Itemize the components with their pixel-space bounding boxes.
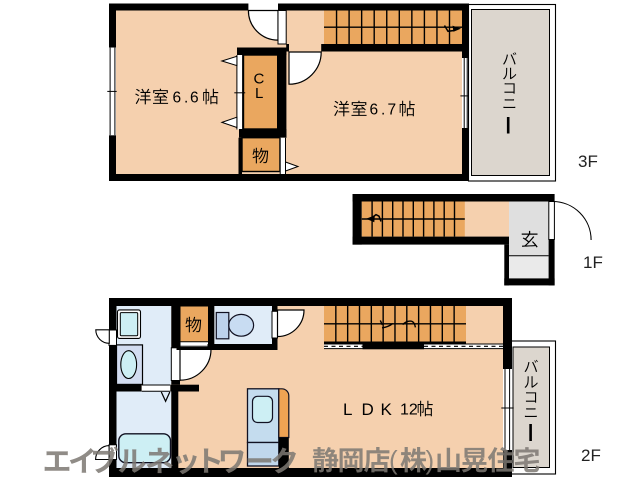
svg-text:D: D [362,400,374,419]
svg-text:6: 6 [190,90,199,107]
svg-text:1F: 1F [583,253,603,272]
svg-text:6: 6 [173,90,182,107]
svg-text:L: L [255,85,263,102]
svg-text:.: . [381,102,385,119]
svg-text:7: 7 [388,102,397,119]
svg-text:6: 6 [370,102,379,119]
svg-text:2F: 2F [581,446,601,465]
svg-text:K: K [381,400,393,419]
svg-text:L: L [343,400,352,419]
svg-text:): ) [426,445,435,475]
svg-text:12: 12 [400,402,418,419]
svg-text:(: ( [389,445,398,475]
svg-text:.: . [184,90,188,107]
svg-text:3F: 3F [578,152,598,171]
